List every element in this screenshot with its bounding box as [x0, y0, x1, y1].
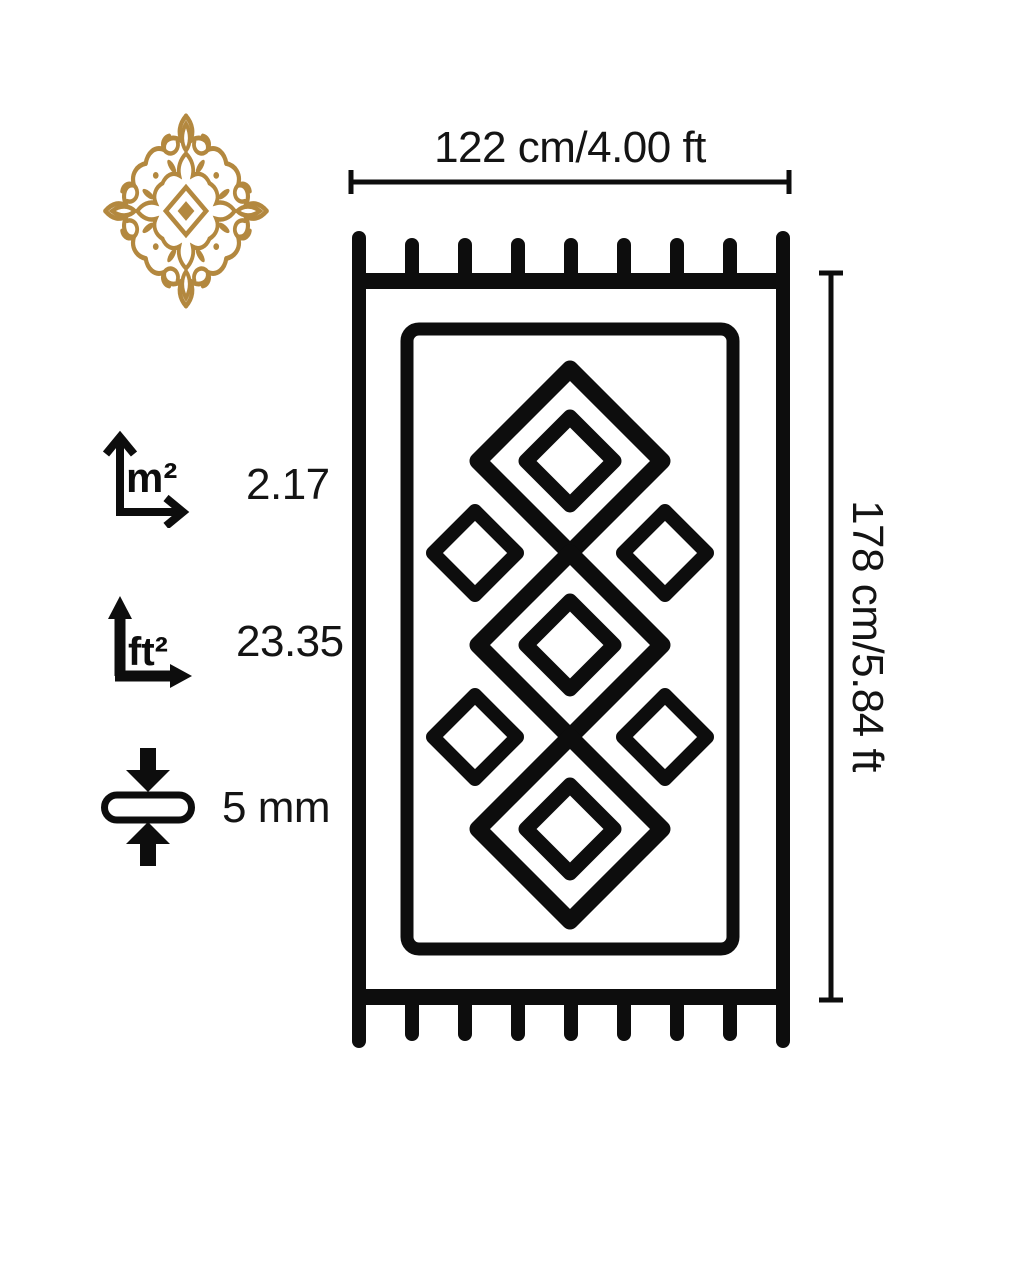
rug-fringe-bottom [412, 996, 730, 1034]
area-m2-icon: m² [96, 428, 211, 528]
width-dimension-label: 122 cm/4.00 ft [360, 126, 780, 170]
height-dimension-label: 178 cm/5.84 ft [845, 500, 889, 772]
area-m2-value: 2.17 [246, 463, 330, 507]
area-ft2-icon: ft² [96, 592, 211, 692]
area-ft2-unit-label: ft² [128, 630, 168, 674]
thickness-icon [98, 746, 198, 868]
thickness-value: 5 mm [222, 786, 330, 830]
height-dimension-line [819, 273, 843, 1000]
area-m2-unit-label: m² [126, 454, 177, 501]
rug-outline [352, 238, 790, 1041]
rug-fringe-top [412, 245, 730, 282]
rug-illustration [352, 238, 790, 1041]
rug-inner-border [407, 329, 733, 949]
product-dimension-sheet: 122 cm/4.00 ft 178 cm/5.84 ft m² 2.17 ft… [0, 0, 1024, 1280]
arabesque-medallion-icon [102, 112, 270, 310]
area-ft2-value: 23.35 [236, 620, 344, 664]
width-dimension-line [351, 170, 789, 194]
rug-diamond-pattern [433, 369, 707, 921]
